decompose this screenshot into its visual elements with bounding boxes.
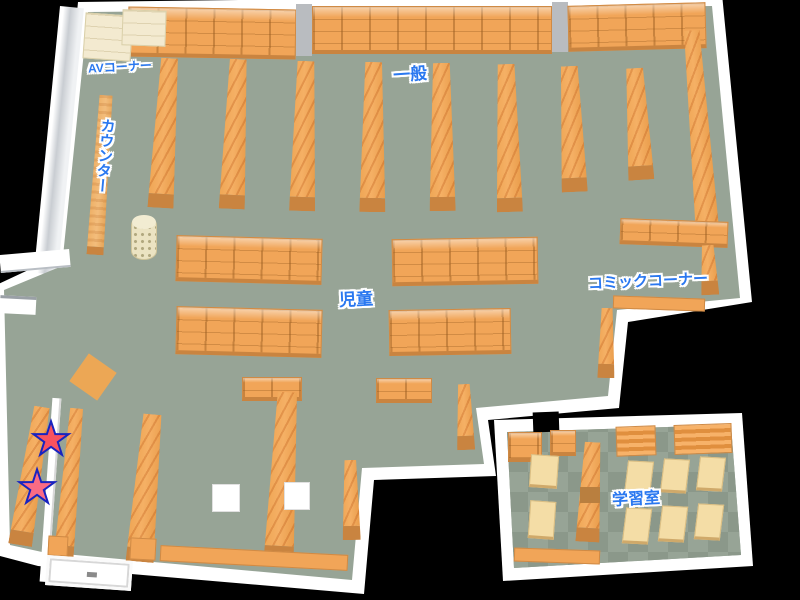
kiosk-table <box>284 482 310 510</box>
study-shelf <box>673 423 732 455</box>
display-cylinder <box>131 216 157 260</box>
study-table <box>694 503 724 540</box>
study-shelf <box>615 425 656 456</box>
study-table <box>528 500 557 540</box>
study-table <box>529 454 559 489</box>
av-shelf <box>121 9 166 47</box>
shelf-block <box>129 537 156 560</box>
shelf-block <box>47 535 68 556</box>
study-table <box>658 505 688 542</box>
comic-shelf <box>620 218 729 248</box>
door-handle <box>87 572 97 578</box>
low-bookshelf <box>389 308 512 356</box>
picture-book-table <box>376 378 432 403</box>
area-label-av-corner: AVコーナー <box>88 56 153 76</box>
pillar <box>552 2 568 52</box>
library-floor-map: AVコーナー 一般 カウンター 児童 コミックコーナー 学習室 ★ ★ <box>0 0 800 600</box>
bookshelf-wall-band <box>312 6 552 54</box>
study-table <box>622 507 652 544</box>
kiosk-table <box>212 484 240 512</box>
study-shelf <box>514 548 600 565</box>
pillar <box>296 4 312 56</box>
alcove-wall-stub <box>0 295 36 315</box>
star-icon[interactable]: ★ <box>34 420 68 458</box>
study-table <box>696 456 726 491</box>
area-label-general: 一般 <box>392 59 428 86</box>
low-bookshelf <box>175 235 322 285</box>
study-table <box>660 458 690 493</box>
low-bookshelf <box>392 237 539 287</box>
area-label-study-room: 学習室 <box>611 484 660 510</box>
area-label-children: 児童 <box>338 284 373 311</box>
divider-gap <box>580 487 600 503</box>
entrance-door <box>45 555 133 591</box>
star-icon[interactable]: ★ <box>20 468 54 506</box>
low-bookshelf <box>175 306 322 358</box>
study-shelf <box>550 430 576 456</box>
